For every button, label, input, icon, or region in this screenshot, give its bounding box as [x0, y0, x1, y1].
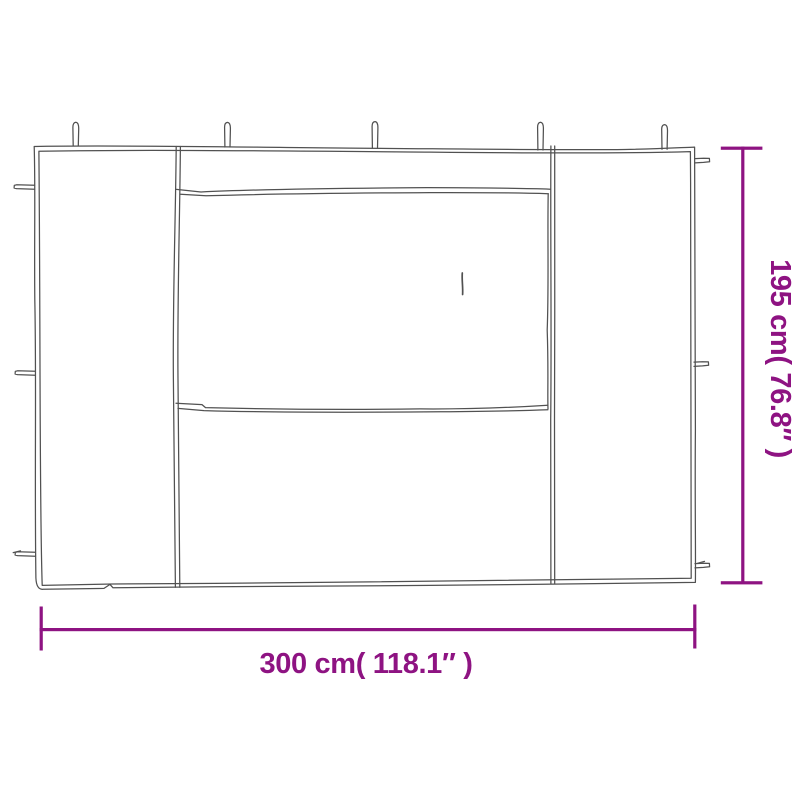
svg-text:300 cm( 118.1″ ): 300 cm( 118.1″ ) — [259, 648, 472, 680]
svg-text:195 cm( 76.8″ ): 195 cm( 76.8″ ) — [764, 259, 796, 458]
